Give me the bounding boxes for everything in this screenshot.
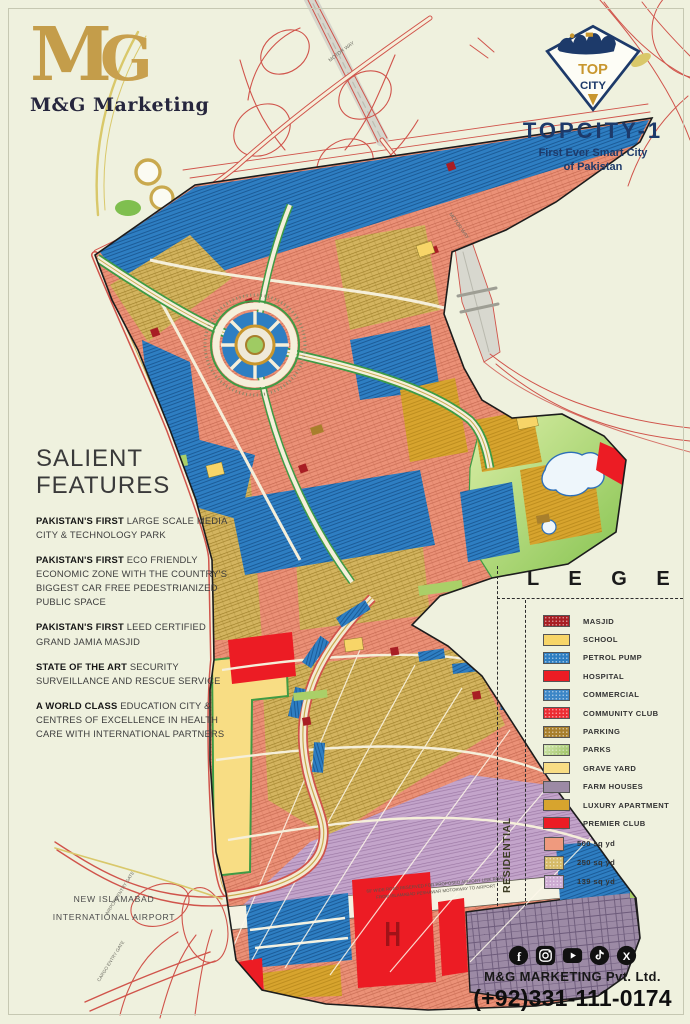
topcity-logo-block: TOP CITY TOPCITY-1 First Ever Smart City…	[508, 22, 678, 175]
legend-swatch	[543, 817, 570, 829]
topcity-subtitle: First Ever Smart City of Pakistan	[508, 147, 678, 175]
tiktok-icon[interactable]	[589, 945, 610, 966]
topcity-diamond-icon: TOP CITY	[543, 22, 643, 114]
legend-item-label: LUXURY APARTMENT	[583, 801, 669, 810]
logo-word-top: TOP	[578, 62, 608, 78]
airport-label-line1: NEW ISLAMABAD	[74, 894, 155, 904]
legend-item: PETROL PUMP	[543, 649, 669, 667]
subtitle-line2: of Pakistan	[564, 161, 623, 173]
subtitle-line1: First Ever Smart City	[539, 147, 648, 159]
legend-swatch	[543, 726, 570, 738]
feature-item: PAKISTAN'S FIRST LEED CERTIFIED GRAND JA…	[36, 620, 236, 648]
mg-monogram: MG	[30, 18, 220, 92]
legend-item-label: PREMIER CLUB	[583, 819, 646, 828]
feature-item: A WORLD CLASS EDUCATION CITY & CENTRES O…	[36, 699, 236, 741]
topcity-title: TOPCITY-1	[508, 118, 678, 144]
monogram-letter-g: G	[100, 22, 153, 95]
legend-residential-group: RESIDENTIAL 500 sq yd250 sq yd139 sq yd	[531, 834, 615, 891]
x-icon[interactable]: X	[616, 945, 637, 966]
legend-swatch	[543, 781, 570, 793]
mg-marketing-name: M&G Marketing	[30, 94, 220, 116]
legend-title: L E G E N D	[527, 568, 690, 591]
airport-interchange	[55, 842, 234, 1018]
feature-lead: PAKISTAN'S FIRST	[36, 554, 124, 565]
legend-swatch	[544, 875, 564, 889]
legend-item-label: COMMERCIAL	[583, 690, 639, 699]
legend-swatch	[543, 634, 570, 646]
legend-item-label: 500 sq yd	[577, 839, 615, 848]
legend: L E G E N D MASJIDSCHOOLPETROL PUMPHOSPI…	[497, 566, 683, 906]
legend-swatch	[543, 744, 570, 756]
legend-item-list: MASJIDSCHOOLPETROL PUMPHOSPITALCOMMERCIA…	[543, 612, 669, 833]
legend-swatch	[543, 762, 570, 774]
commercial-area	[460, 482, 520, 562]
legend-item: 250 sq yd	[544, 853, 615, 872]
legend-item: SCHOOL	[543, 630, 669, 648]
legend-item-label: PARKING	[583, 727, 620, 736]
legend-swatch	[543, 799, 570, 811]
legend-swatch	[543, 689, 570, 701]
legend-swatch	[543, 652, 570, 664]
legend-swatch	[543, 670, 570, 682]
legend-item: 500 sq yd	[544, 834, 615, 853]
legend-item: COMMERCIAL	[543, 686, 669, 704]
instagram-icon[interactable]	[535, 945, 556, 966]
youtube-icon[interactable]	[562, 945, 583, 966]
legend-item: 139 sq yd	[544, 872, 615, 891]
poster-page: MOTOR WAY MOTOR WAY AIRPORT ENTRY GATE C…	[0, 0, 690, 1024]
feature-item: PAKISTAN'S FIRST ECO FRIENDLY ECONOMIC Z…	[36, 553, 236, 609]
airport-label-line2: INTERNATIONAL AIRPORT	[53, 912, 175, 922]
mg-marketing-logo: MG M&G Marketing	[30, 18, 220, 116]
legend-item-label: HOSPITAL	[583, 672, 624, 681]
salient-feature-list: PAKISTAN'S FIRST LARGE SCALE MEDIA CITY …	[36, 514, 236, 741]
footer-contact: fX M&G MARKETING Pvt. Ltd. (+92)331-111-…	[465, 945, 680, 1012]
residential-rotated-label: RESIDENTIAL	[531, 834, 544, 891]
legend-dashed-line-top	[497, 598, 683, 599]
social-icons: fX	[465, 945, 680, 966]
feature-lead: A WORLD CLASS	[36, 700, 117, 711]
facebook-icon[interactable]: f	[508, 945, 529, 966]
legend-item: PARKING	[543, 722, 669, 740]
monogram-letter-m: M	[30, 12, 100, 98]
legend-item: GRAVE YARD	[543, 759, 669, 777]
commercial-area	[246, 893, 352, 968]
salient-features: SALIENT FEATURES PAKISTAN'S FIRST LARGE …	[36, 446, 236, 752]
feature-lead: STATE OF THE ART	[36, 661, 127, 672]
legend-item: LUXURY APARTMENT	[543, 796, 669, 814]
salient-features-title: SALIENT FEATURES	[36, 446, 236, 500]
company-name: M&G MARKETING Pvt. Ltd.	[465, 969, 680, 984]
logo-word-city: CITY	[580, 80, 606, 92]
legend-item: PREMIER CLUB	[543, 814, 669, 832]
legend-item-label: SCHOOL	[583, 635, 618, 644]
feature-item: PAKISTAN'S FIRST LARGE SCALE MEDIA CITY …	[36, 514, 236, 542]
legend-item: MASJID	[543, 612, 669, 630]
feature-lead: PAKISTAN'S FIRST	[36, 621, 124, 632]
legend-swatch	[543, 615, 570, 627]
legend-item-label: MASJID	[583, 617, 614, 626]
legend-item: COMMUNITY CLUB	[543, 704, 669, 722]
airport-label: NEW ISLAMABAD INTERNATIONAL AIRPORT	[34, 890, 194, 926]
feature-item: STATE OF THE ART SECURITY SURVEILLANCE A…	[36, 660, 236, 688]
legend-swatch	[543, 707, 570, 719]
legend-item-label: PARKS	[583, 745, 611, 754]
legend-item-label: PETROL PUMP	[583, 653, 642, 662]
legend-swatch	[544, 837, 564, 851]
phone-number: (+92)331-111-0174	[465, 985, 680, 1012]
legend-item: HOSPITAL	[543, 667, 669, 685]
legend-dashed-line-inner	[525, 600, 526, 906]
legend-dashed-line-left	[497, 566, 498, 906]
legend-swatch	[544, 856, 564, 870]
legend-item: PARKS	[543, 741, 669, 759]
legend-item: FARM HOUSES	[543, 778, 669, 796]
legend-item-label: 250 sq yd	[577, 858, 615, 867]
feature-lead: PAKISTAN'S FIRST	[36, 515, 124, 526]
legend-item-label: GRAVE YARD	[583, 764, 636, 773]
salient-title-line1: SALIENT	[36, 445, 143, 472]
svg-text:X: X	[623, 951, 631, 963]
legend-item-label: FARM HOUSES	[583, 782, 643, 791]
residential-item-list: 500 sq yd250 sq yd139 sq yd	[544, 834, 615, 891]
cargo-gate-label: CARGO ENTRY GATE	[96, 940, 125, 982]
legend-item-label: 139 sq yd	[577, 877, 615, 886]
salient-title-line2: FEATURES	[36, 472, 170, 499]
legend-item-label: COMMUNITY CLUB	[583, 709, 659, 718]
premier-club-block	[228, 632, 296, 684]
railway-spindle	[455, 242, 500, 362]
